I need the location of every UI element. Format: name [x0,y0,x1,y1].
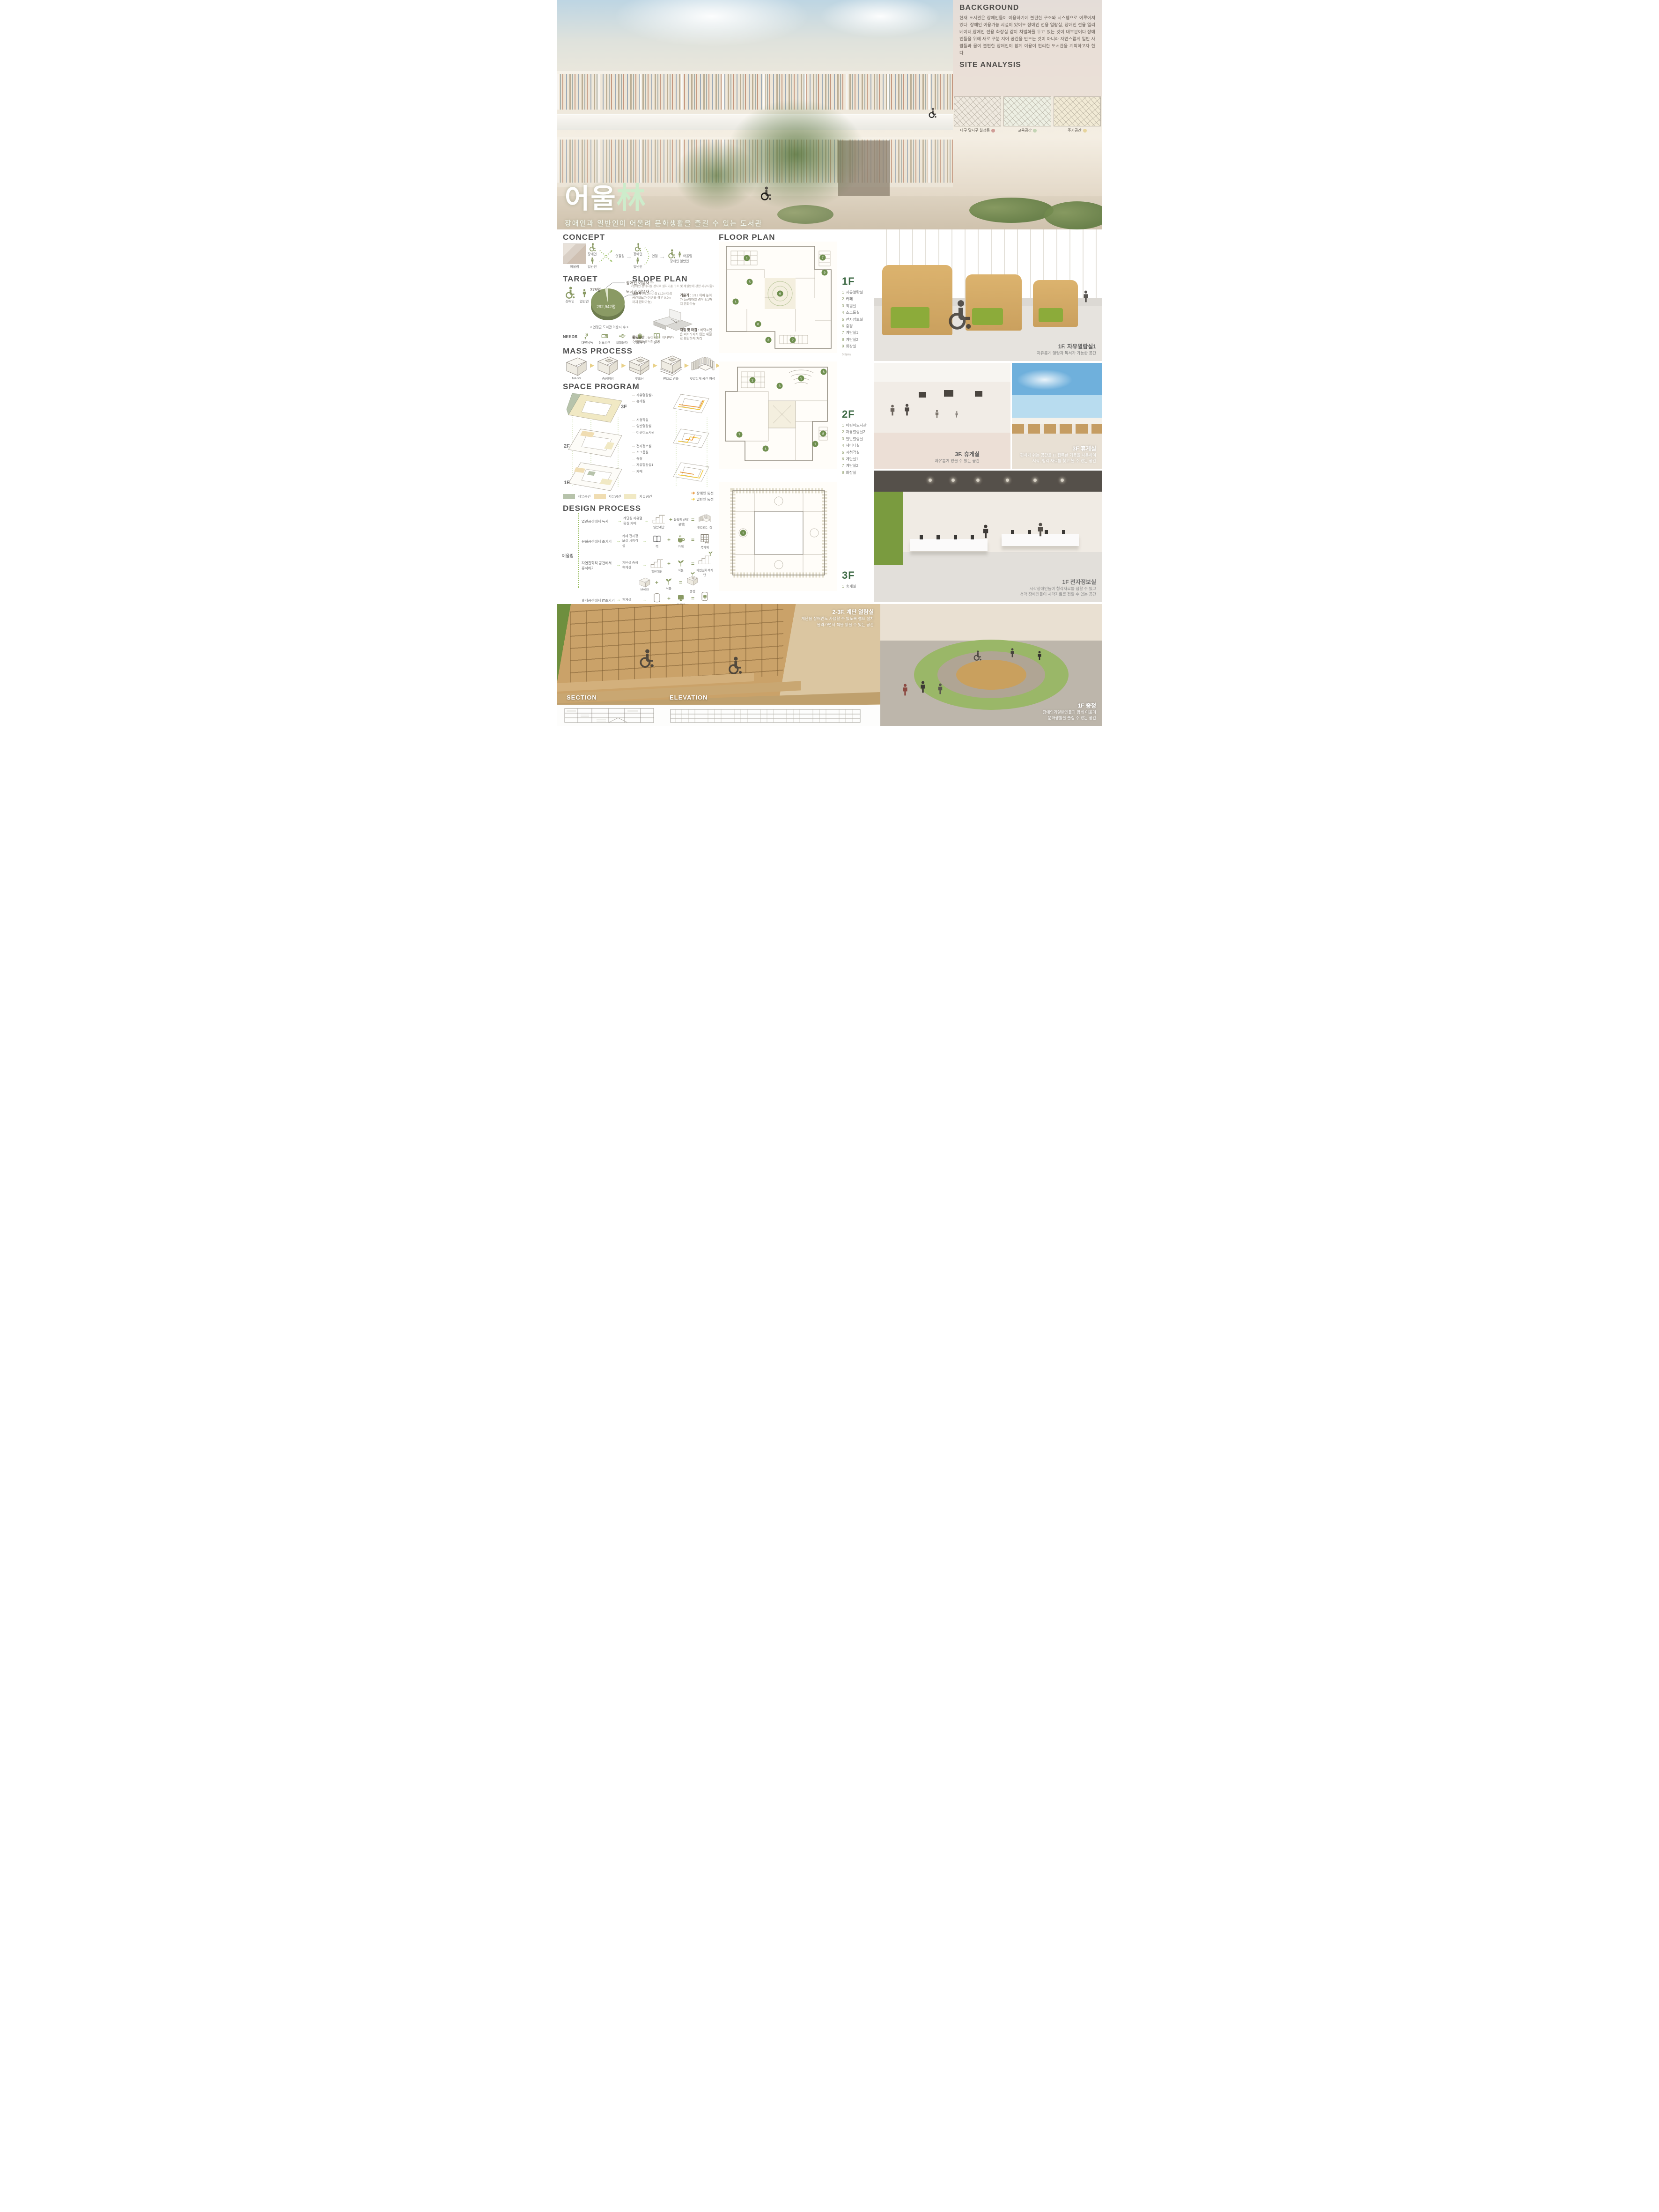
plus-icon: + [667,595,671,602]
plus-icon: + [667,537,671,543]
drawings-strip [557,705,880,726]
person-silhouette [935,674,946,703]
svg-text:1: 1 [742,531,744,535]
floor-tag: 2F [842,408,867,420]
site-analysis-heading: SITE ANALYSIS [959,61,1095,69]
coffee-cup-icon [677,535,685,543]
circulation-axon [671,392,714,491]
svg-text:7: 7 [822,256,824,259]
person-icon [589,257,596,264]
legend-room: 1어린이도서관 [842,422,867,429]
room-label: 전자정보실 [632,443,669,450]
floor-plan-1f-legend: 1F 1자유열람실2카페3직원실4소그룹실5전자정보실6중정7계단실18계단실2… [842,275,863,356]
artwork [919,392,926,398]
concept-photo-label: 어울림 [570,265,579,269]
legend-room: 3일반열람실 [842,436,867,442]
mass-step-icon [595,355,620,376]
plus-icon: + [667,560,671,567]
mass-step-icon [658,355,684,376]
design-process-spine [578,513,579,588]
project-subtitle: 장애인과 일반인이 어울려 문화생활을 즐길 수 있는 도서관 [565,218,762,228]
legend-room: 2자유열람실2 [842,429,867,435]
stairs-icon [650,558,664,568]
legend-room: 3직원실 [842,303,863,310]
section-heading: SECTION [567,694,597,701]
yellow-arrow-icon: ▶ [653,362,657,369]
needs-icon [584,332,591,339]
room-label: 시청각실 [632,417,669,423]
book-cafe-icon [700,534,709,544]
project-title: 어울 [565,184,617,214]
project-title-hanja: 林 [617,182,646,214]
section-drawing [564,707,657,724]
needs-item: 확대문자 [615,332,629,345]
mass-step: 면으로 변화 [657,355,685,381]
legend-room: 6계단실1 [842,456,867,463]
reading-pod [966,274,1022,331]
svg-text:3: 3 [767,339,769,342]
hero-render: 어울林 장애인과 일반인이 어울려 문화생활을 즐길 수 있는 도서관 BACK… [557,0,1102,229]
mass-step-icon [690,355,715,376]
svg-text:2: 2 [792,339,794,342]
room-label: 자유열람실2 [632,392,669,398]
design-process-row-3b: MASS + 식물 = 중정 [636,575,714,593]
site-map-image [1003,96,1051,126]
target-disabled-label: 장애인 [565,299,574,304]
site-map-label: 대구 달서구 월성동 [960,128,990,133]
person-icon [634,257,641,264]
reading-pod [882,265,952,335]
slope-spec-width: 유효폭 : 1.2m이상 (1.2m이상 공간확보가 어려울 경우 0.9m까지… [632,291,673,305]
mass-step-label: 중정형성 [602,376,614,381]
rooms-2f: 시청각실일반열람실어린이도서관 [632,417,669,436]
room-label: 소그룹실 [632,450,669,456]
rooms-1f: 전자정보실소그룹실중정자유열람실1카페 [632,443,669,475]
crossing-paths-icon [598,247,614,265]
svg-text:3: 3 [779,384,781,388]
concept-diagram: 어울림 장애인 일반인 엇갈림 → 장애인 일반인 연결 → [563,241,714,272]
render-caption: 1F 중정 장애인과일반인들과 함께 어울려 문화생활을 즐길 수 있는 공간 [1043,701,1096,722]
room-label: 일반열람실 [632,423,669,429]
site-map-image [954,96,1001,126]
svg-text:5: 5 [749,280,751,284]
project-title-block: 어울林 장애인과 일반인이 어울려 문화생활을 즐길 수 있는 도서관 [565,174,762,228]
mass-step: 중정형성 [594,355,621,381]
svg-text:1: 1 [814,442,816,446]
wheelchair-person-silhouette [927,108,937,118]
plant-icon [665,578,672,585]
design-process-row-2: 문화공간에서 즐기기⇢ 카페 전자정보실 시청각실⇢ 책 + 카페 = 북카페 [582,534,714,549]
concept-disabled-label: 장애인 [588,252,597,257]
rooms-3f: 자유열람실2휴게실 [632,392,669,405]
person-silhouette [1035,643,1044,668]
floor-tag-1f: 1F [564,480,570,486]
floor-plan-3f: 1 [719,482,837,591]
needs-label: NEEDS [563,334,577,339]
wheelchair-person-silhouette [726,656,744,674]
render-courtyard: 1F 중정 장애인과일반인들과 함께 어울려 문화생활을 즐길 수 있는 공간 [880,604,1102,726]
room-label: 휴게실 [632,398,669,405]
svg-text:5: 5 [800,377,802,380]
artwork [944,390,953,397]
needs-item: 대면낭독 [580,332,594,345]
yellow-arrow-icon: ▶ [590,362,594,369]
legend-room: 1자유열람실 [842,289,863,296]
pie-slice-value: 375명 [590,288,601,292]
bookshelf-band-upper [557,71,953,114]
legend-swatch [624,494,636,499]
arrow-right-icon: → [659,253,665,260]
legend-room: 5전자정보실 [842,317,863,323]
svg-text:8: 8 [822,432,824,435]
concept-merge-sub: 장애인 일반인 [670,259,689,264]
needs-icon [601,332,608,339]
legend-room: 5시청각실 [842,450,867,456]
svg-text:6: 6 [823,370,825,374]
plus-icon: + [669,516,672,523]
reading-pod [1033,280,1078,327]
legend-room: 9화장실 [842,343,863,350]
render-caption: 1F 전자정보실 시각장애인들이 청각자료를 접할 수 있고 청각 장애인들이 … [1020,578,1096,598]
person-silhouette [1080,280,1092,313]
wheelchair-icon [634,243,642,251]
pie-caption: < 연평균 도서관 이용자 수 > [590,325,628,330]
needs-item-label: 확대문자 [616,340,628,345]
mass-process-steps: MASS ▶ 중정형성 ▶ 루프선 ▶ [563,355,714,381]
design-process-heading: DESIGN PROCESS [563,504,641,513]
stairs-icon [652,514,666,524]
mass-step-label: 면으로 변화 [663,376,678,381]
computer-icon [703,595,707,599]
legend-label: 자유공간 [609,494,622,499]
pie-main-value: 292,942명 [597,304,616,309]
svg-text:7: 7 [738,433,740,436]
slope-spec-activity: 활동공간 : 높이 0.7m 이내마다 수평면의 휴식참 설치 [632,335,677,344]
person-silhouette [1008,641,1017,665]
svg-text:4: 4 [735,300,737,303]
needs-icon [619,332,626,339]
site-analysis-maps: 대구 달서구 월성동 교육공간 주거공간 [953,96,1102,133]
background-body: 현재 도서관은 장애인들이 이용하기에 불편한 구조와 시스템으로 이루어져있다… [959,15,1095,57]
legend-room: 8화장실 [842,470,867,476]
plan-scale: 0 5(m) [842,353,863,356]
plant-icon [708,551,713,556]
legend-swatch [594,494,606,499]
person-silhouette [901,394,913,426]
slope-spec-material: 재질 및 마감 : 바닥표면은 미끄러지지 않는 재질로 평탄하게 처리 [680,328,714,341]
room-label: 어린이도서관 [632,430,669,436]
render-caption: 3F 휴게실 편하게 쉬는 공간을 IT 접목한 기둥을 사용하여 시각, 청각… [1020,444,1096,465]
svg-text:9: 9 [824,271,826,274]
legend-room: 6중정 [842,323,863,330]
floor-stack-axon: 3F 2F 1F [563,392,631,491]
book-icon [652,535,662,543]
tablet-table [910,539,988,551]
design-process-root: 어울림 [562,553,574,559]
equals-icon: = [691,560,694,567]
person-silhouette [899,674,911,705]
person-icon [677,251,683,258]
background-heading: BACKGROUND [959,4,1095,12]
person-silhouette [979,513,993,550]
mass-step: 엇갈리게 공간 형성 [689,355,716,381]
wheelchair-person-silhouette [944,300,974,330]
staggered-floors-icon [697,513,712,524]
render-stair-reading: 2-3F. 계단 열람실 계단을 장애인도 사용할 수 있도록 램프 설치 올라… [557,604,880,705]
render-caption: 1F. 자유열람실1 자유롭게 열람과 독서가 가능한 공간 [1037,342,1096,356]
wheelchair-person-silhouette [972,644,982,667]
render-lounge-terrace: 3F 휴게실 편하게 쉬는 공간을 IT 접목한 기둥을 사용하여 시각, 청각… [1012,363,1102,469]
flow-label: 일반인 동선 [696,497,714,502]
needs-item-label: 대면낭독 [582,340,593,345]
room-label: 카페 [632,469,669,475]
mass-step: MASS [563,356,590,380]
needs-item-label: 정보검색 [599,340,611,345]
floor-tag-3f: 3F [621,404,627,410]
column-icon [653,593,661,603]
equals-icon: = [691,595,694,602]
space-program-legend: 자유공간 자유공간 자유공간 ➔ 장애인 동선 ➔ 일반인 동선 [563,491,714,502]
computer-icon [677,594,685,602]
legend-room: 8계단실2 [842,337,863,343]
site-map-cell: 교육공간 [1003,96,1051,133]
wheelchair-icon [667,249,676,258]
mass-step-label: 루프선 [635,376,644,381]
flow-label: 장애인 동선 [696,491,714,496]
wheelchair-person-silhouette [637,649,656,668]
elevation-heading: ELEVATION [670,694,708,701]
concept-connect-label: 연결 [652,254,658,258]
bush [969,198,1054,223]
legend-room: 7계단실2 [842,463,867,469]
connection-arc-icon [644,246,650,266]
concept-merge-label: 어울림 [683,254,692,258]
floor-tag: 3F [842,569,856,582]
render-caption: 3F. 휴게실 자유롭게 있을 수 있는 공간 [935,450,980,464]
yellow-arrow-icon: ▶ [621,362,626,369]
floor-plan-2f: 12345678 [719,361,837,469]
elevation-drawing [670,707,866,724]
person-silhouette [887,396,898,425]
legend-label: 자유공간 [578,494,591,499]
equals-icon: = [691,516,694,523]
render-free-reading-room: 1F. 자유열람실1 자유롭게 열람과 독서가 가능한 공간 [874,229,1102,361]
mass-process-heading: MASS PROCESS [563,347,633,356]
plant-icon [677,560,685,567]
slope-spec-gradient: 기울기 : 1/12 이하 높이가 1m이하일 경우 8/1까지 완화가능 [680,293,714,307]
background-panel: BACKGROUND 현재 도서관은 장애인들이 이용하기에 불편한 구조와 시… [953,0,1102,96]
yellow-arrow-icon: ▶ [685,362,689,369]
floor-plan-heading: FLOOR PLAN [719,233,775,242]
map-legend-dot [1033,129,1037,133]
render-lounge-gallery: 3F. 휴게실 자유롭게 있을 수 있는 공간 [874,363,1010,469]
legend-label: 자유공간 [639,494,652,499]
mass-step-icon [627,355,652,376]
svg-text:6: 6 [779,292,781,295]
mass-step-icon [564,356,589,376]
legend-room: 4소그룹실 [842,310,863,316]
plus-icon: + [655,579,658,586]
wheelchair-icon [564,287,576,299]
legend-swatch [563,494,575,499]
map-legend-dot [991,129,995,133]
map-legend-dot [1083,129,1087,133]
presentation-board: 어울林 장애인과 일반인이 어울려 문화생활을 즐길 수 있는 도서관 BACK… [557,0,1102,726]
cloud-shape [1017,369,1073,390]
floor-plan-2f-legend: 2F 1어린이도서관2자유열람실23일반열람실4세미나실5시청각실6계단실17계… [842,408,867,476]
floor-plan-3f-legend: 3F 1휴게실 [842,569,856,590]
svg-text:4: 4 [765,447,767,450]
green-wall [874,492,903,565]
site-map-cell: 대구 달서구 월성동 [954,96,1001,133]
slope-plan-heading: SLOPE PLAN [632,274,688,284]
concept-photo [563,243,586,264]
svg-text:1: 1 [746,257,748,260]
site-map-label: 주거공간 [1068,128,1081,133]
person-silhouette [953,406,960,423]
cloud-shape [613,0,810,47]
equals-icon: = [691,537,694,543]
legend-room: 7계단실1 [842,330,863,336]
mass-cube-icon [638,577,651,588]
disabled-flow-arrow-icon: ➔ [691,491,695,496]
floor-plan-1f: 123456789 [719,242,837,353]
equals-icon: = [679,579,682,586]
render-caption: 2-3F. 계단 열람실 계단을 장애인도 사용할 수 있도록 램프 설치 올라… [801,608,874,628]
space-program-diagram: 3F 2F 1F 자유열람실2휴게실 시청각실일반열람실어린이도서관 전자정보실… [563,392,714,499]
artwork [975,391,982,397]
concept-general-label: 일반인 [588,265,597,269]
legend-room: 2카페 [842,296,863,302]
concept-cross-label: 엇갈림 [615,254,624,258]
site-map-label: 교육공간 [1018,128,1032,133]
wheelchair-icon [588,243,597,251]
site-map-cell: 주거공간 [1054,96,1101,133]
slope-plan-note: <장애인 편의시설 경사로 설치기준 구조 및 재질등에 관한 세부사항> [627,284,714,288]
space-program-heading: SPACE PROGRAM [563,382,640,391]
plant-icon [690,572,695,577]
cloud-shape [819,0,941,37]
svg-text:8: 8 [757,323,759,326]
design-process-row-1: 열린공간에서 독서⇢ 계단실 자유열람실 카페⇢ 일반계단 + 움직임 (공간 … [582,513,714,530]
general-flow-arrow-icon: ➔ [691,497,695,502]
bush [777,205,833,224]
render-digital-room: 1F 전자정보실 시각장애인들이 청각자료를 접할 수 있고 청각 장애인들이 … [874,471,1102,602]
svg-text:2: 2 [752,379,753,382]
site-map-image [1054,96,1101,126]
needs-item: 정보검색 [597,332,612,345]
mass-step: 루프선 [626,355,653,381]
person-silhouette [1033,510,1047,549]
room-label: 자유열람실1 [632,462,669,468]
legend-room: 4세미나실 [842,442,867,449]
person-silhouette [933,403,941,425]
plan-markers-3f: 1 [740,530,746,536]
person-silhouette [917,671,929,703]
floor-tag-2f: 2F [564,443,570,449]
mass-step-label: MASS [572,377,581,380]
table-row [1012,424,1102,434]
floor-tag: 1F [842,275,863,288]
legend-room: 1휴게실 [842,583,856,590]
room-label: 중정 [632,456,669,462]
arrow-right-icon: → [626,253,632,260]
mass-step-label: 엇갈리게 공간 형성 [690,376,715,381]
